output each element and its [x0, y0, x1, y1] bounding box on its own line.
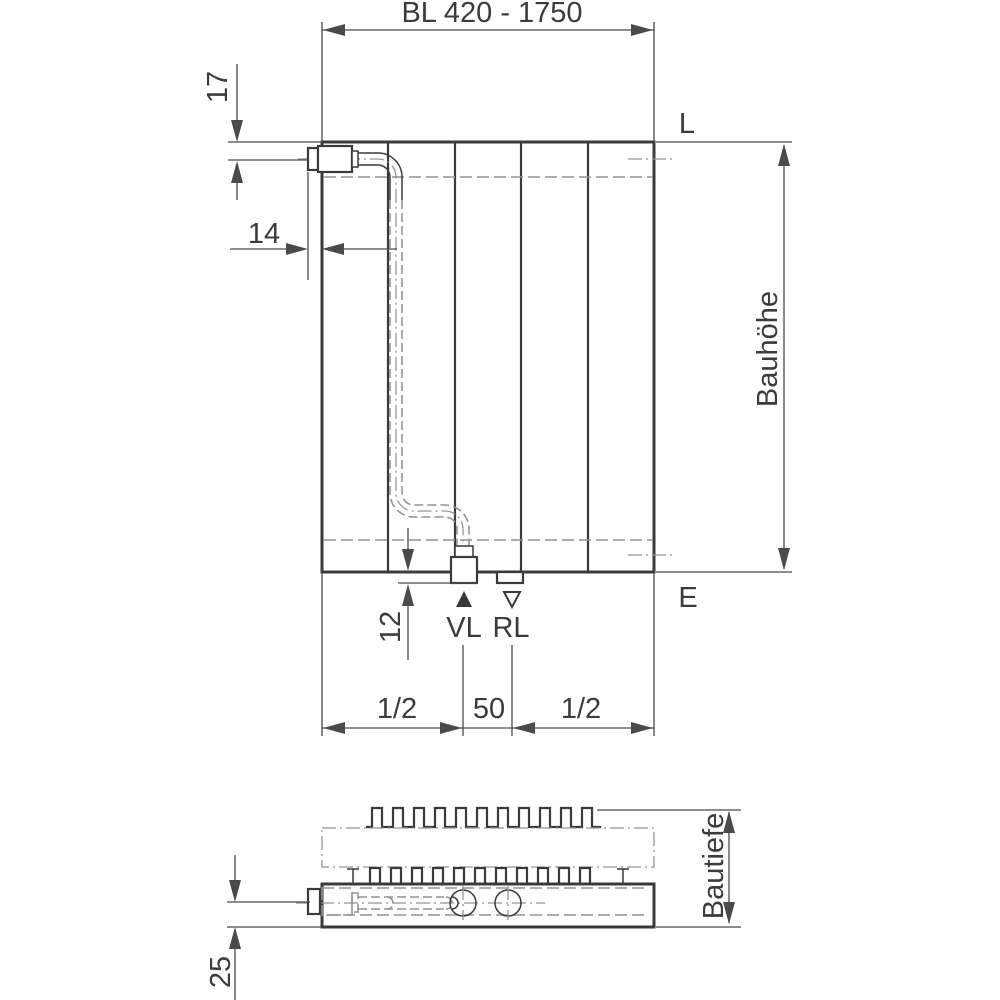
dim-bottom-connections: 1/2 50 1/2 — [322, 572, 654, 736]
return-nub — [497, 572, 523, 583]
dim-valve-top-offset: 17 — [202, 64, 322, 200]
label-return: RL — [492, 612, 529, 644]
arrowhead-down — [229, 880, 241, 902]
fin-end-left — [347, 869, 359, 884]
dim-half-left-label: 1/2 — [377, 693, 417, 725]
panel-body — [322, 884, 654, 927]
radiator-technical-drawing: BL 420 - 1750 17 14 Ba — [0, 0, 1000, 1000]
dim-height: Bauhöhe L E — [656, 108, 792, 614]
arrowhead-left — [513, 722, 535, 734]
arrowhead-down — [778, 548, 790, 570]
dim-depth-label: Bautiefe — [698, 813, 730, 919]
arrowhead-up — [402, 584, 414, 606]
arrowhead-right — [631, 722, 653, 734]
label-top-right: L — [679, 108, 695, 140]
dim-half-right-label: 1/2 — [561, 693, 601, 725]
arrowhead-right — [631, 24, 653, 36]
arrowhead-down — [231, 120, 243, 142]
dim-length-label: BL 420 - 1750 — [401, 0, 582, 29]
supply-arrow-icon — [456, 591, 472, 607]
arrowhead-up — [231, 161, 243, 183]
supply-nub — [451, 557, 477, 583]
arrowhead-left — [323, 24, 345, 36]
supply-fitting — [455, 546, 473, 557]
label-supply: VL — [446, 612, 481, 644]
phantom-outline — [322, 828, 654, 867]
dim-length: BL 420 - 1750 — [322, 0, 654, 142]
arrowhead-up — [229, 927, 241, 949]
arrowhead-right — [286, 243, 308, 255]
dim-12-label: 12 — [375, 611, 407, 643]
arrowhead-right — [440, 722, 462, 734]
label-bottom-right: E — [678, 582, 697, 614]
dim-center-label: 50 — [473, 693, 505, 725]
dim-17-label: 17 — [202, 71, 234, 103]
arrowhead-left — [323, 722, 345, 734]
arrowhead-up — [778, 144, 790, 166]
dim-height-label: Bauhöhe — [752, 291, 784, 407]
plan-view: Bautiefe 25 — [205, 808, 741, 1000]
front-view: BL 420 - 1750 17 14 Ba — [202, 0, 792, 736]
dim-25-label: 25 — [205, 956, 237, 988]
fin-end-right — [617, 869, 629, 884]
valve-connection — [308, 146, 358, 172]
radiator-body — [322, 142, 654, 572]
supply-return-markers: VL RL — [446, 591, 529, 644]
dim-pipe-offset: 25 — [205, 855, 322, 1000]
return-arrow-icon — [504, 592, 520, 607]
dim-14-label: 14 — [248, 218, 280, 250]
convector-fins-rear — [367, 808, 600, 827]
convector-fins-front — [366, 868, 610, 884]
